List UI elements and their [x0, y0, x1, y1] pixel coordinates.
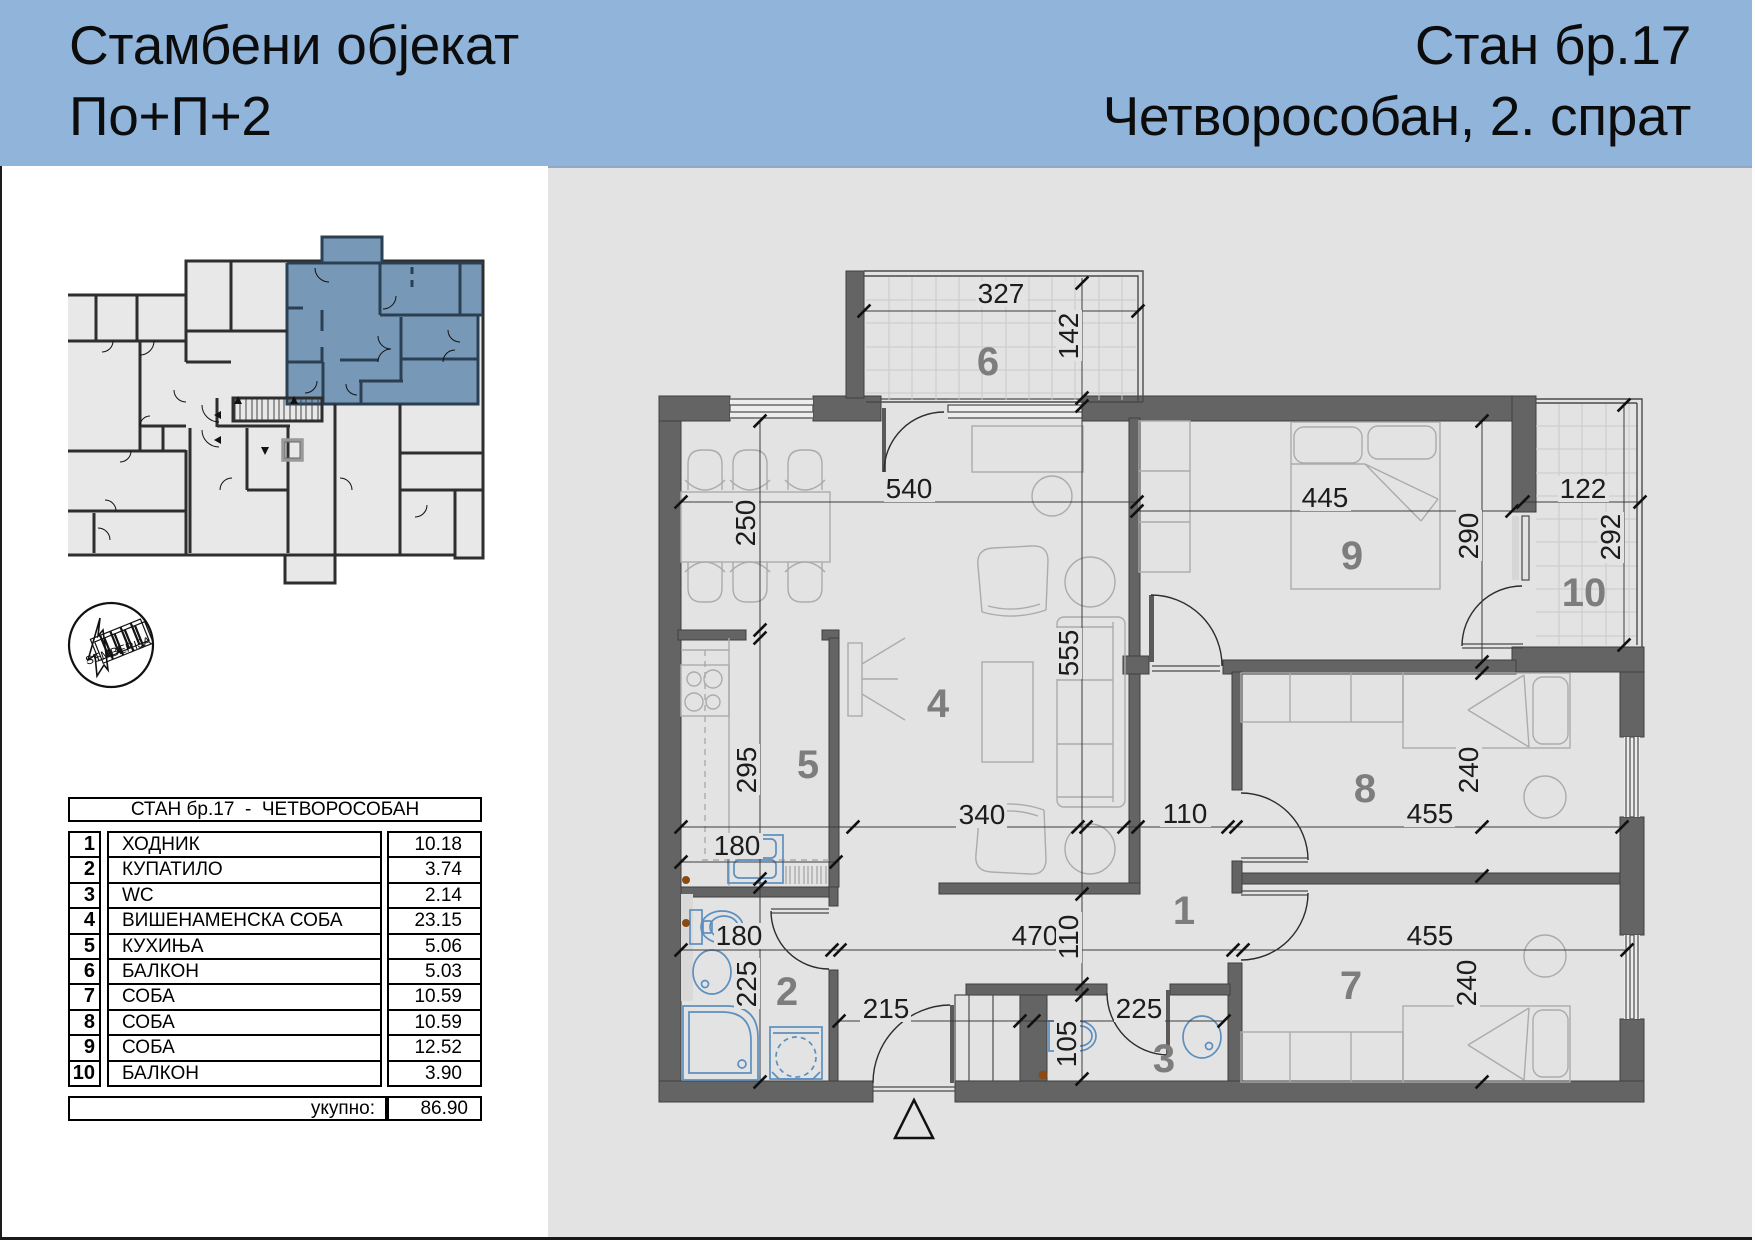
svg-text:10: 10: [1562, 571, 1607, 615]
svg-text:290: 290: [1453, 513, 1484, 560]
svg-text:445: 445: [1302, 482, 1349, 513]
svg-text:7: 7: [1340, 964, 1362, 1008]
svg-text:1: 1: [1173, 889, 1195, 933]
svg-text:180: 180: [716, 920, 763, 951]
svg-text:225: 225: [731, 961, 762, 1008]
svg-text:3: 3: [1153, 1037, 1175, 1081]
svg-text:4: 4: [927, 682, 950, 726]
svg-text:5: 5: [797, 743, 819, 787]
svg-text:2: 2: [776, 970, 798, 1014]
svg-text:225: 225: [1116, 993, 1163, 1024]
svg-text:292: 292: [1595, 514, 1626, 561]
svg-text:327: 327: [978, 278, 1025, 309]
svg-text:250: 250: [730, 500, 761, 547]
svg-text:6: 6: [977, 340, 999, 384]
svg-text:240: 240: [1453, 747, 1484, 794]
svg-text:110: 110: [1053, 915, 1084, 960]
svg-text:215: 215: [863, 993, 910, 1024]
svg-text:180: 180: [714, 830, 761, 861]
svg-text:455: 455: [1407, 798, 1454, 829]
svg-text:240: 240: [1451, 960, 1482, 1007]
svg-text:9: 9: [1341, 534, 1363, 578]
svg-text:142: 142: [1053, 313, 1084, 360]
svg-text:340: 340: [959, 799, 1006, 830]
svg-text:105: 105: [1051, 1021, 1082, 1068]
svg-text:540: 540: [886, 473, 933, 504]
svg-text:295: 295: [731, 747, 762, 794]
svg-text:470: 470: [1012, 920, 1059, 951]
svg-text:110: 110: [1163, 798, 1208, 829]
svg-text:555: 555: [1053, 630, 1084, 677]
svg-text:8: 8: [1354, 767, 1376, 811]
svg-text:122: 122: [1560, 473, 1607, 504]
svg-text:455: 455: [1407, 920, 1454, 951]
